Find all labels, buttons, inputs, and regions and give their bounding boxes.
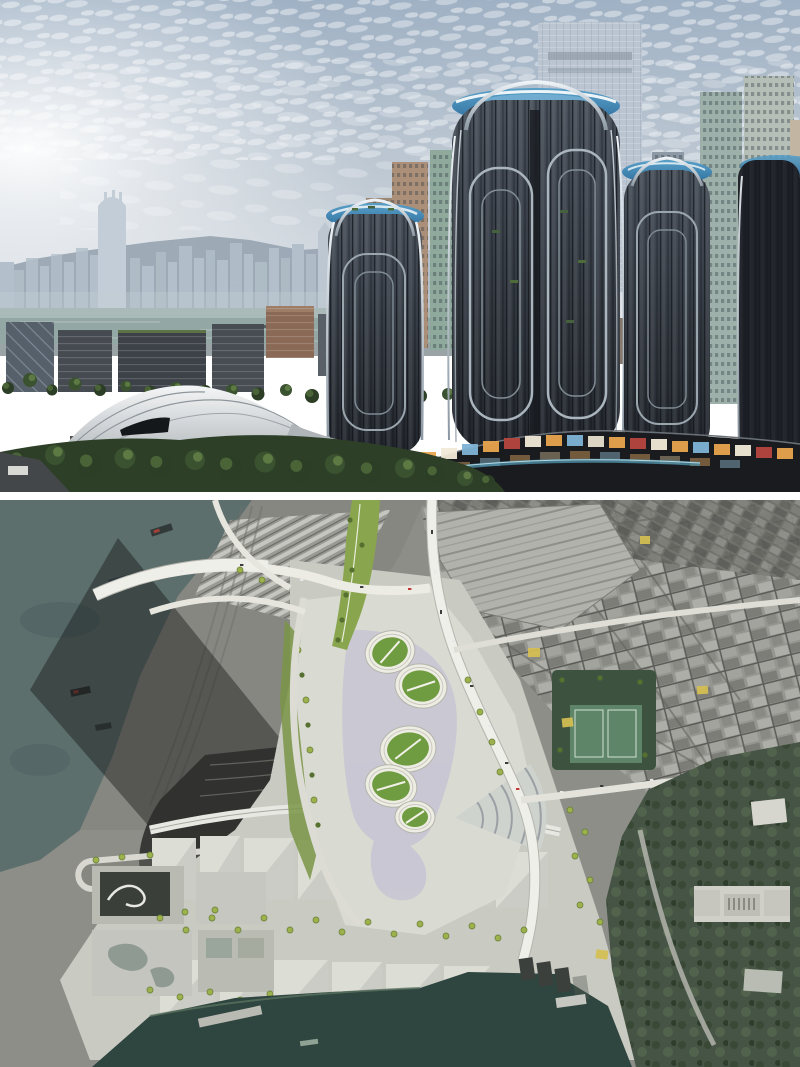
aerial-panel — [0, 500, 800, 1067]
curved-tower-left — [326, 200, 424, 454]
heritage-building — [694, 886, 790, 922]
panel-divider — [0, 492, 800, 500]
rendering-panel — [0, 0, 800, 492]
curved-tower-far-right — [738, 155, 800, 478]
curved-tower-main — [448, 82, 624, 452]
curved-tower-right — [622, 158, 712, 456]
screenshot-root — [0, 0, 800, 1067]
brick-building — [266, 306, 314, 358]
foreground-trees — [0, 435, 505, 492]
